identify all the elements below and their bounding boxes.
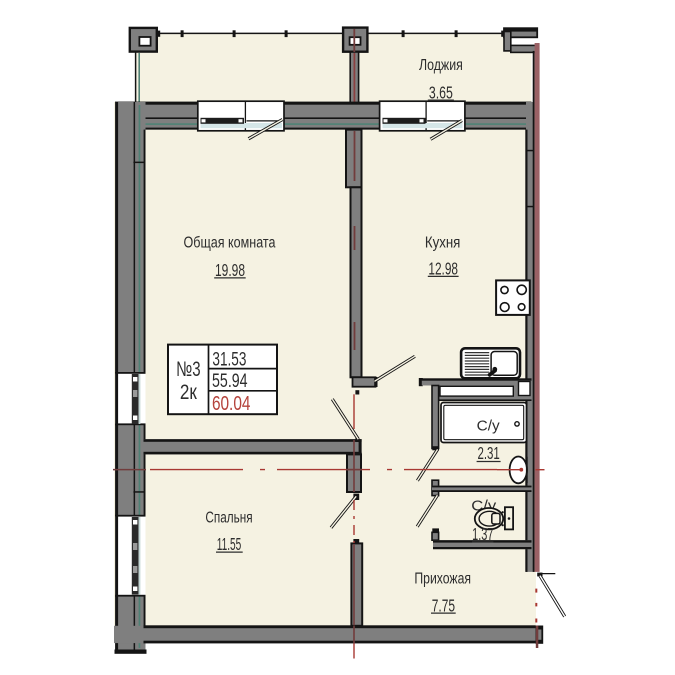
- svg-text:3.65: 3.65: [429, 82, 453, 102]
- svg-text:Кухня: Кухня: [425, 235, 461, 252]
- svg-text:19.98: 19.98: [215, 260, 245, 280]
- svg-text:Общая комната: Общая комната: [184, 234, 276, 251]
- svg-text:12.98: 12.98: [428, 259, 458, 279]
- svg-text:1.37: 1.37: [472, 524, 493, 544]
- svg-text:Прихожая: Прихожая: [414, 571, 471, 588]
- svg-text:С/у: С/у: [477, 419, 501, 435]
- svg-text:2к: 2к: [180, 381, 198, 404]
- svg-text:11.55: 11.55: [217, 534, 242, 554]
- svg-text:31.53: 31.53: [212, 349, 246, 371]
- svg-text:2.31: 2.31: [477, 443, 499, 463]
- svg-text:Спальня: Спальня: [205, 510, 252, 527]
- svg-text:№3: №3: [176, 358, 201, 381]
- svg-text:Лоджия: Лоджия: [419, 57, 463, 74]
- svg-text:60.04: 60.04: [212, 392, 251, 415]
- svg-text:55.94: 55.94: [212, 370, 248, 392]
